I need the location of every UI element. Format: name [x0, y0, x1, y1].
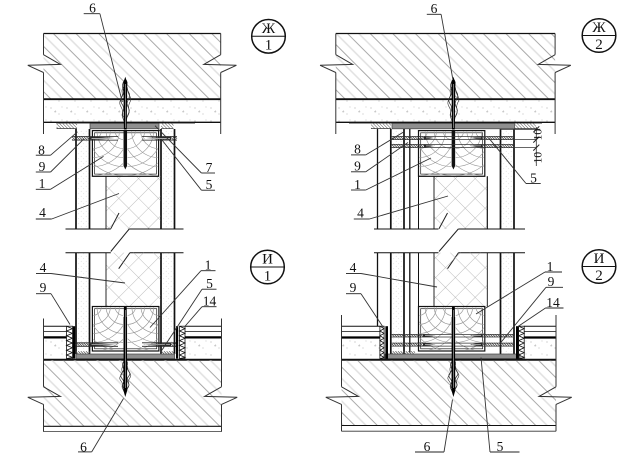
svg-text:14: 14: [203, 293, 217, 308]
svg-text:2: 2: [595, 268, 603, 284]
svg-text:1: 1: [264, 268, 272, 284]
svg-text:4: 4: [40, 260, 47, 275]
svg-text:9: 9: [350, 280, 357, 295]
svg-text:8: 8: [354, 142, 361, 157]
svg-text:10: 10: [533, 152, 545, 164]
svg-text:6: 6: [431, 1, 438, 16]
svg-text:1: 1: [265, 38, 273, 54]
svg-text:4: 4: [350, 260, 357, 275]
svg-text:1: 1: [205, 257, 212, 272]
svg-text:4: 4: [357, 205, 364, 220]
svg-text:И: И: [262, 252, 273, 268]
svg-text:5: 5: [206, 276, 213, 291]
svg-text:9: 9: [354, 158, 361, 173]
svg-text:Ж: Ж: [262, 21, 276, 37]
svg-text:2: 2: [595, 37, 603, 53]
svg-text:И: И: [594, 251, 605, 267]
svg-text:6: 6: [89, 0, 96, 15]
svg-text:4: 4: [39, 205, 46, 220]
svg-text:10: 10: [533, 129, 545, 141]
svg-text:Ж: Ж: [592, 20, 606, 36]
svg-text:9: 9: [40, 280, 47, 295]
